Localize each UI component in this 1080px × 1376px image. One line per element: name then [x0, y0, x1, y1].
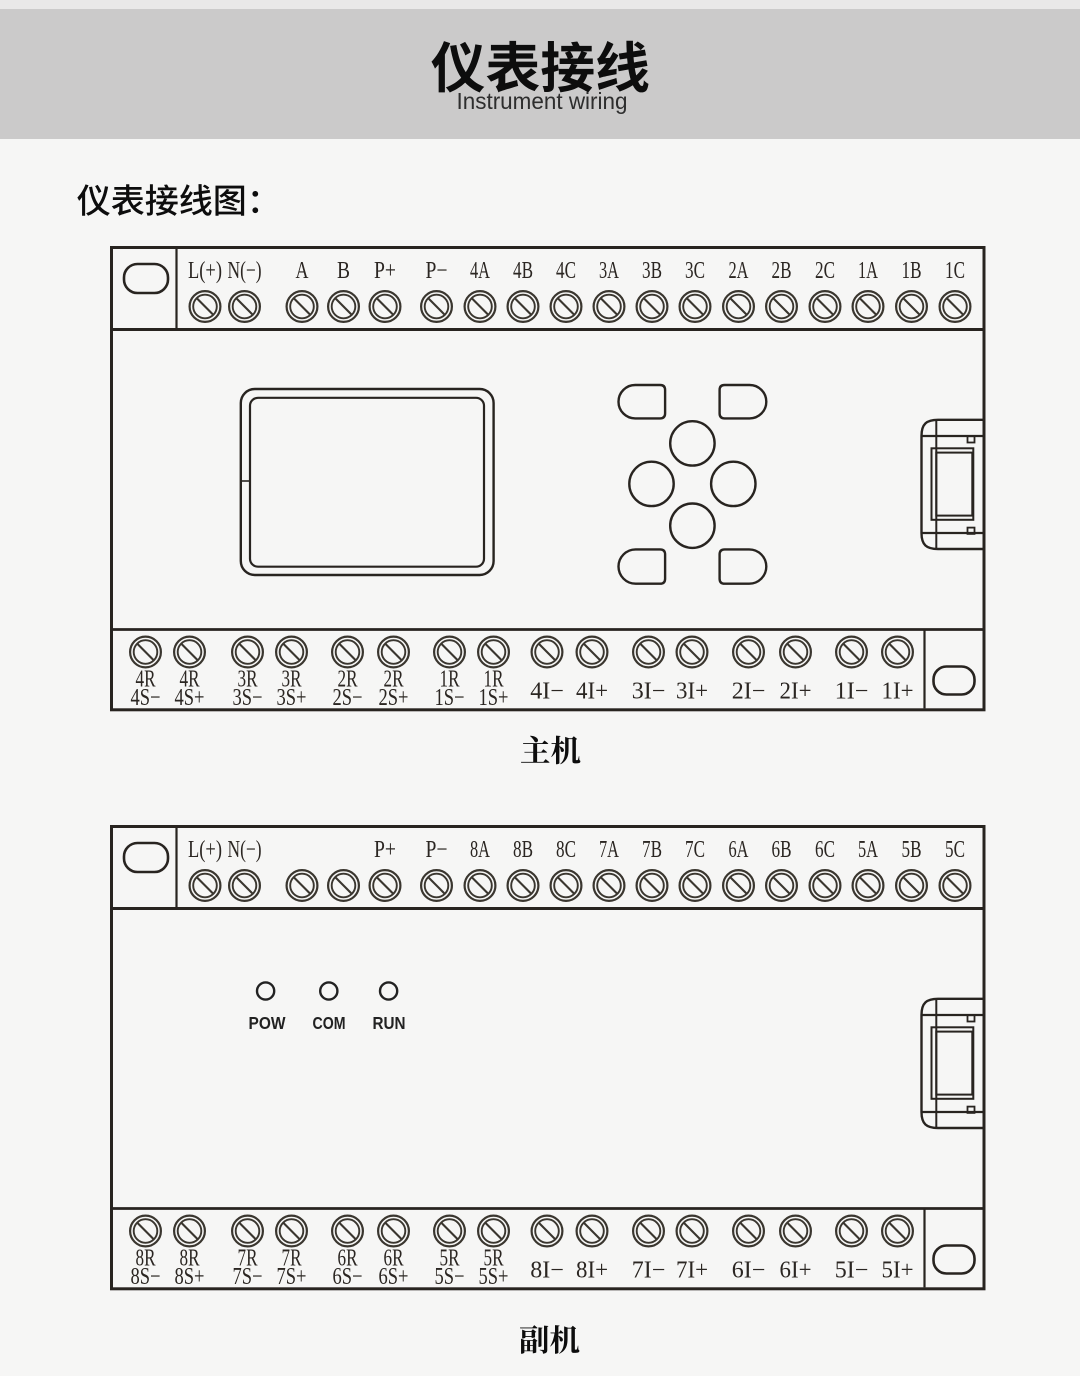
svg-text:4S+: 4S+	[175, 685, 205, 711]
svg-text:1S−: 1S−	[435, 685, 465, 711]
svg-text:8I−: 8I−	[530, 1258, 564, 1284]
svg-text:7C: 7C	[685, 837, 705, 863]
svg-text:4C: 4C	[556, 258, 576, 284]
svg-text:2S+: 2S+	[379, 685, 409, 711]
svg-text:8I+: 8I+	[576, 1258, 608, 1284]
svg-text:Instrument wiring: Instrument wiring	[457, 88, 628, 114]
svg-text:3B: 3B	[642, 258, 662, 284]
svg-text:1I+: 1I+	[882, 679, 914, 705]
svg-text:3I+: 3I+	[676, 679, 708, 705]
svg-text:5S+: 5S+	[479, 1264, 509, 1290]
svg-text:8B: 8B	[513, 837, 533, 863]
svg-text:L(+): L(+)	[188, 837, 222, 863]
svg-text:N(−): N(−)	[228, 837, 262, 863]
svg-text:5I−: 5I−	[835, 1258, 869, 1284]
svg-text:A: A	[296, 258, 309, 284]
svg-text:4A: 4A	[470, 258, 490, 284]
svg-text:5A: 5A	[858, 837, 878, 863]
svg-text:1S+: 1S+	[479, 685, 509, 711]
svg-text:1A: 1A	[858, 258, 878, 284]
svg-text:1I−: 1I−	[835, 679, 869, 705]
svg-text:POW: POW	[249, 1013, 286, 1033]
svg-text:7A: 7A	[599, 837, 619, 863]
svg-text:2A: 2A	[729, 258, 749, 284]
svg-text:L(+): L(+)	[188, 258, 222, 284]
svg-text:6S+: 6S+	[379, 1264, 409, 1290]
svg-text:2C: 2C	[815, 258, 835, 284]
svg-text:4S−: 4S−	[131, 685, 161, 711]
svg-text:N(−): N(−)	[228, 258, 262, 284]
svg-text:8S−: 8S−	[131, 1264, 161, 1290]
svg-text:8C: 8C	[556, 837, 576, 863]
svg-text:P+: P+	[374, 258, 396, 284]
svg-text:7I−: 7I−	[632, 1258, 666, 1284]
svg-text:5I+: 5I+	[882, 1258, 914, 1284]
svg-text:8S+: 8S+	[175, 1264, 205, 1290]
svg-text:3C: 3C	[685, 258, 705, 284]
svg-text:6B: 6B	[772, 837, 792, 863]
svg-text:2S−: 2S−	[333, 685, 363, 711]
svg-text:P+: P+	[374, 837, 396, 863]
svg-text:6I−: 6I−	[732, 1258, 766, 1284]
svg-text:COM: COM	[313, 1013, 346, 1033]
svg-text:7B: 7B	[642, 837, 662, 863]
svg-text:7S−: 7S−	[233, 1264, 263, 1290]
svg-text:1C: 1C	[945, 258, 965, 284]
svg-text:8A: 8A	[470, 837, 490, 863]
svg-text:P−: P−	[426, 837, 448, 863]
svg-text:6I+: 6I+	[780, 1258, 812, 1284]
svg-text:P−: P−	[426, 258, 448, 284]
svg-text:3S+: 3S+	[277, 685, 307, 711]
svg-text:3S−: 3S−	[233, 685, 263, 711]
svg-text:5S−: 5S−	[435, 1264, 465, 1290]
svg-text:4I−: 4I−	[530, 679, 564, 705]
svg-text:B: B	[337, 258, 350, 284]
svg-text:3I−: 3I−	[632, 679, 666, 705]
svg-text:2I−: 2I−	[732, 679, 766, 705]
svg-text:RUN: RUN	[373, 1013, 406, 1033]
svg-text:4B: 4B	[513, 258, 533, 284]
svg-text:5B: 5B	[902, 837, 922, 863]
svg-text:7S+: 7S+	[277, 1264, 307, 1290]
svg-text:5C: 5C	[945, 837, 965, 863]
svg-text:2B: 2B	[772, 258, 792, 284]
svg-text:6S−: 6S−	[333, 1264, 363, 1290]
svg-text:3A: 3A	[599, 258, 619, 284]
svg-text:7I+: 7I+	[676, 1258, 708, 1284]
svg-text:2I+: 2I+	[780, 679, 812, 705]
svg-text:6C: 6C	[815, 837, 835, 863]
svg-text:4I+: 4I+	[576, 679, 608, 705]
svg-text:1B: 1B	[902, 258, 922, 284]
svg-text:6A: 6A	[729, 837, 749, 863]
